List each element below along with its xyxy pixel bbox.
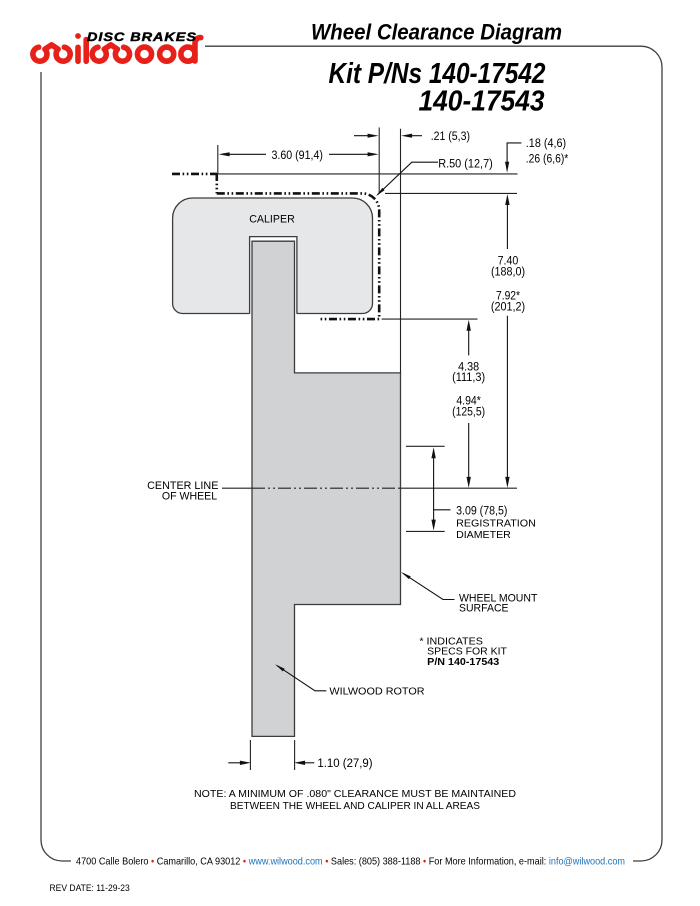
svg-text:140-17543: 140-17543 [419, 86, 545, 118]
svg-text:P/N 140-17543: P/N 140-17543 [427, 657, 499, 668]
svg-text:(125,5): (125,5) [452, 404, 485, 418]
svg-text:DISC BRAKES: DISC BRAKES [87, 30, 197, 44]
svg-text:3.60 (91,4): 3.60 (91,4) [271, 148, 323, 162]
svg-text:CALIPER: CALIPER [249, 213, 295, 225]
svg-text:.26 (6,6)*: .26 (6,6)* [526, 152, 569, 166]
svg-text:WILWOOD ROTOR: WILWOOD ROTOR [329, 686, 425, 697]
svg-text:(111,3): (111,3) [452, 370, 485, 384]
svg-text:R.50 (12,7): R.50 (12,7) [438, 157, 493, 171]
svg-text:NOTE: A MINIMUM OF .080" CLEAR: NOTE: A MINIMUM OF .080" CLEARANCE MUST … [194, 789, 516, 800]
svg-text:1.10 (27,9): 1.10 (27,9) [317, 756, 372, 770]
svg-text:3.09 (78,5): 3.09 (78,5) [456, 504, 507, 518]
svg-text:Wheel Clearance Diagram: Wheel Clearance Diagram [311, 20, 562, 45]
svg-text:SURFACE: SURFACE [459, 602, 509, 614]
svg-text:4700 Calle Bolero • Camarillo,: 4700 Calle Bolero • Camarillo, CA 93012 … [76, 856, 625, 867]
svg-text:OF WHEEL: OF WHEEL [162, 491, 217, 503]
svg-text:REGISTRATION: REGISTRATION [456, 518, 536, 529]
svg-text:(188,0): (188,0) [491, 265, 525, 279]
svg-text:BETWEEN THE WHEEL AND CALIPER: BETWEEN THE WHEEL AND CALIPER IN ALL ARE… [230, 801, 480, 812]
svg-text:DIAMETER: DIAMETER [456, 530, 511, 541]
svg-text:.21 (5,3): .21 (5,3) [431, 129, 470, 143]
svg-text:(201,2): (201,2) [491, 299, 525, 313]
svg-text:REV DATE: 11-29-23: REV DATE: 11-29-23 [50, 883, 130, 893]
svg-text:.18 (4,6): .18 (4,6) [526, 136, 566, 150]
